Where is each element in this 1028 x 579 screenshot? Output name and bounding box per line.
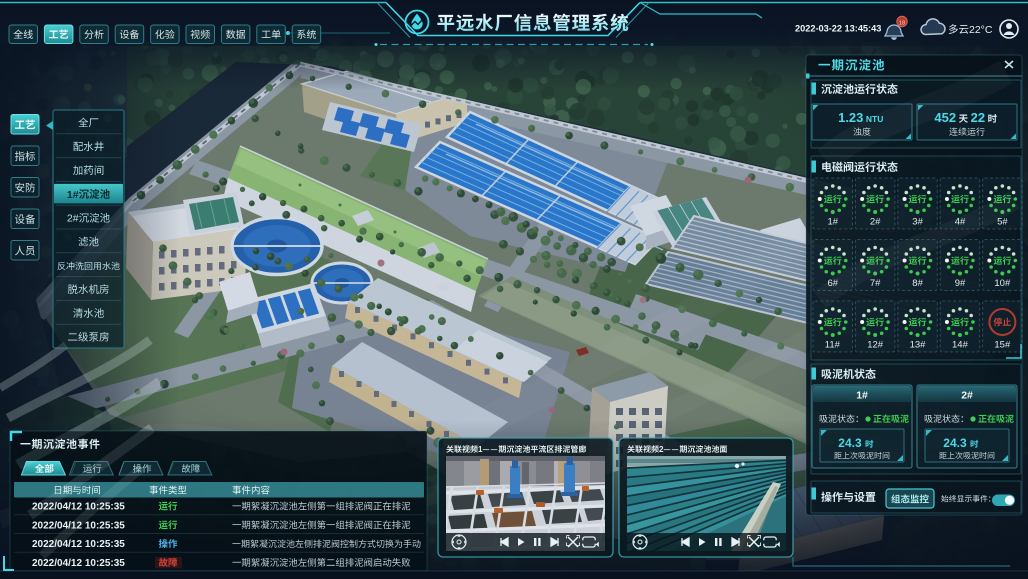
svg-text:1#: 1# bbox=[67, 189, 79, 201]
svg-text:2#: 2# bbox=[961, 390, 973, 402]
svg-text:11#: 11# bbox=[825, 340, 841, 351]
svg-text:24.3: 24.3 bbox=[943, 436, 967, 450]
svg-text:22°C: 22°C bbox=[969, 24, 993, 36]
svg-text:2#: 2# bbox=[870, 217, 881, 228]
svg-text:15#: 15# bbox=[994, 340, 1011, 351]
svg-text:7#: 7# bbox=[870, 278, 881, 289]
svg-text:12#: 12# bbox=[867, 340, 884, 351]
svg-text:2#: 2# bbox=[67, 213, 79, 225]
svg-text:8#: 8# bbox=[912, 278, 923, 289]
svg-text:10#: 10# bbox=[994, 278, 1011, 289]
svg-text:3#: 3# bbox=[912, 217, 923, 228]
svg-text:2022/04/12 10:25:35: 2022/04/12 10:25:35 bbox=[32, 558, 125, 569]
svg-text:1#: 1# bbox=[856, 390, 868, 402]
svg-text:13#: 13# bbox=[910, 340, 927, 351]
svg-text:14#: 14# bbox=[952, 340, 969, 351]
svg-text:18: 18 bbox=[899, 20, 905, 26]
svg-text:22: 22 bbox=[971, 110, 985, 125]
svg-text:24.3: 24.3 bbox=[838, 436, 862, 450]
svg-text:2022-03-22 13:45:43: 2022-03-22 13:45:43 bbox=[795, 24, 881, 34]
svg-text:9#: 9# bbox=[955, 278, 966, 289]
svg-text:1: 1 bbox=[478, 445, 483, 454]
svg-text:2: 2 bbox=[659, 445, 664, 454]
svg-text:1#: 1# bbox=[828, 217, 839, 228]
